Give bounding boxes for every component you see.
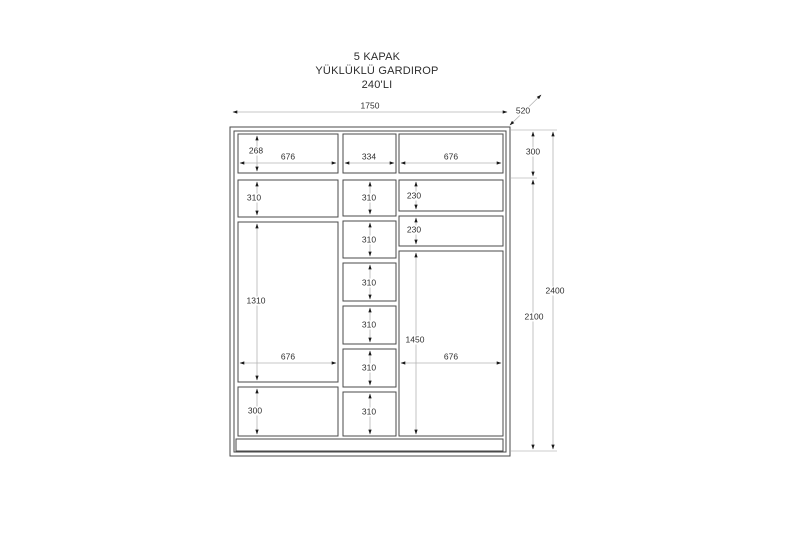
dim-label-mid-shelf-5: 310 bbox=[361, 364, 377, 373]
dim-label-mid-shelf-6: 310 bbox=[361, 408, 377, 417]
dim-label-right-main-width: 676 bbox=[443, 353, 459, 362]
dim-label-overall-width: 1750 bbox=[360, 102, 381, 111]
wardrobe-diagram bbox=[0, 0, 800, 533]
dim-label-top-left-width: 676 bbox=[280, 153, 296, 162]
dim-label-body-interior-height: 2100 bbox=[524, 313, 545, 322]
dim-label-left-bottom-height: 300 bbox=[247, 407, 263, 416]
dim-label-top-left-height: 268 bbox=[248, 147, 264, 156]
base-plinth bbox=[236, 439, 503, 451]
dim-label-mid-shelf-4: 310 bbox=[361, 321, 377, 330]
dim-label-top-mid-width: 334 bbox=[361, 153, 377, 162]
dim-label-left-shelf-height: 310 bbox=[246, 194, 262, 203]
dim-label-mid-shelf-3: 310 bbox=[361, 279, 377, 288]
dim-label-right-shelf-1: 230 bbox=[406, 192, 422, 201]
technical-drawing-canvas: 5 KAPAK YÜKLÜKLÜ GARDIROP 240'LI bbox=[0, 0, 800, 533]
dim-label-mid-shelf-2: 310 bbox=[361, 236, 377, 245]
dim-label-left-main-width: 676 bbox=[280, 353, 296, 362]
dim-label-top-section-height: 300 bbox=[525, 148, 541, 157]
dim-label-mid-shelf-1: 310 bbox=[361, 194, 377, 203]
dim-label-right-shelf-2: 230 bbox=[406, 226, 422, 235]
dim-label-left-main-height: 1310 bbox=[246, 297, 267, 306]
dim-label-depth: 520 bbox=[515, 107, 531, 116]
dim-label-right-main-height: 1450 bbox=[405, 336, 426, 345]
dim-label-total-height: 2400 bbox=[545, 287, 566, 296]
dim-label-top-right-width: 676 bbox=[443, 153, 459, 162]
